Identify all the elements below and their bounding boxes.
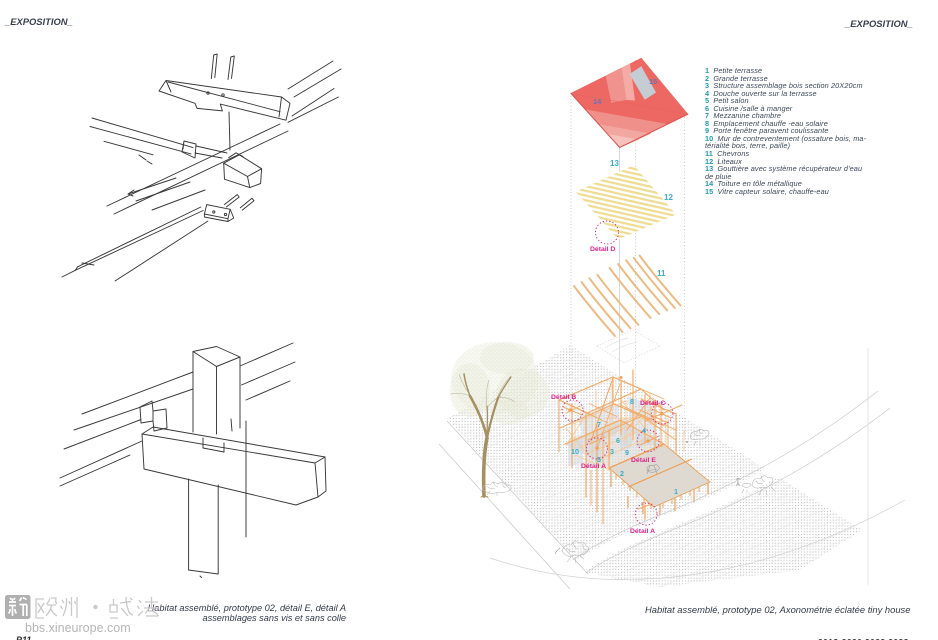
svg-text:14: 14 [593, 97, 602, 106]
svg-text:9: 9 [625, 448, 629, 457]
svg-text:Détail E: Détail E [631, 457, 656, 464]
svg-text:3: 3 [610, 447, 614, 456]
svg-text:7: 7 [597, 420, 601, 429]
svg-text:Détail D: Détail D [590, 246, 615, 253]
svg-text:12: 12 [664, 193, 673, 202]
svg-text:2: 2 [620, 469, 624, 478]
svg-text:1: 1 [674, 487, 678, 496]
svg-text:Détail A: Détail A [630, 528, 655, 535]
svg-text:4: 4 [642, 426, 646, 435]
svg-text:10: 10 [571, 447, 579, 456]
svg-text:13: 13 [610, 159, 619, 168]
svg-text:8: 8 [630, 397, 634, 406]
svg-text:6: 6 [616, 436, 620, 445]
svg-text:Détail C: Détail C [640, 400, 665, 407]
svg-text:Détail A: Détail A [581, 463, 606, 470]
svg-text:15: 15 [649, 77, 657, 86]
svg-text:11: 11 [657, 269, 666, 278]
svg-text:Détail B: Détail B [551, 394, 576, 401]
svg-text:5: 5 [597, 455, 601, 464]
